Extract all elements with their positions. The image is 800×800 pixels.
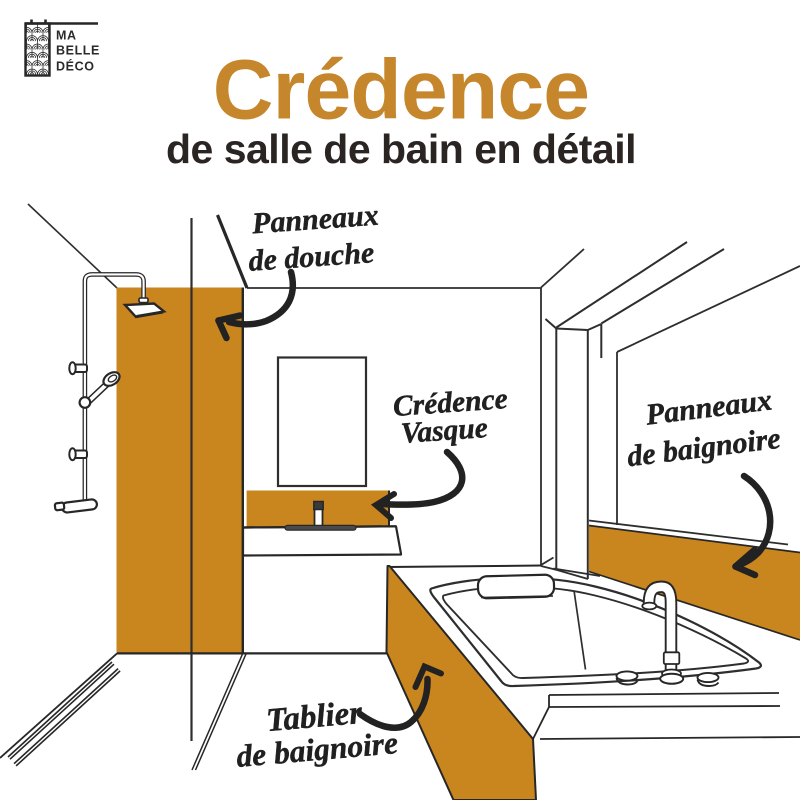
svg-text:DÉCO: DÉCO xyxy=(56,59,95,74)
svg-text:MA: MA xyxy=(56,29,77,43)
svg-text:de salle de bain en détail: de salle de bain en détail xyxy=(166,126,636,172)
svg-text:Crédence: Crédence xyxy=(213,43,589,137)
svg-text:BELLE: BELLE xyxy=(56,44,100,58)
svg-text:Vasque: Vasque xyxy=(400,412,489,450)
